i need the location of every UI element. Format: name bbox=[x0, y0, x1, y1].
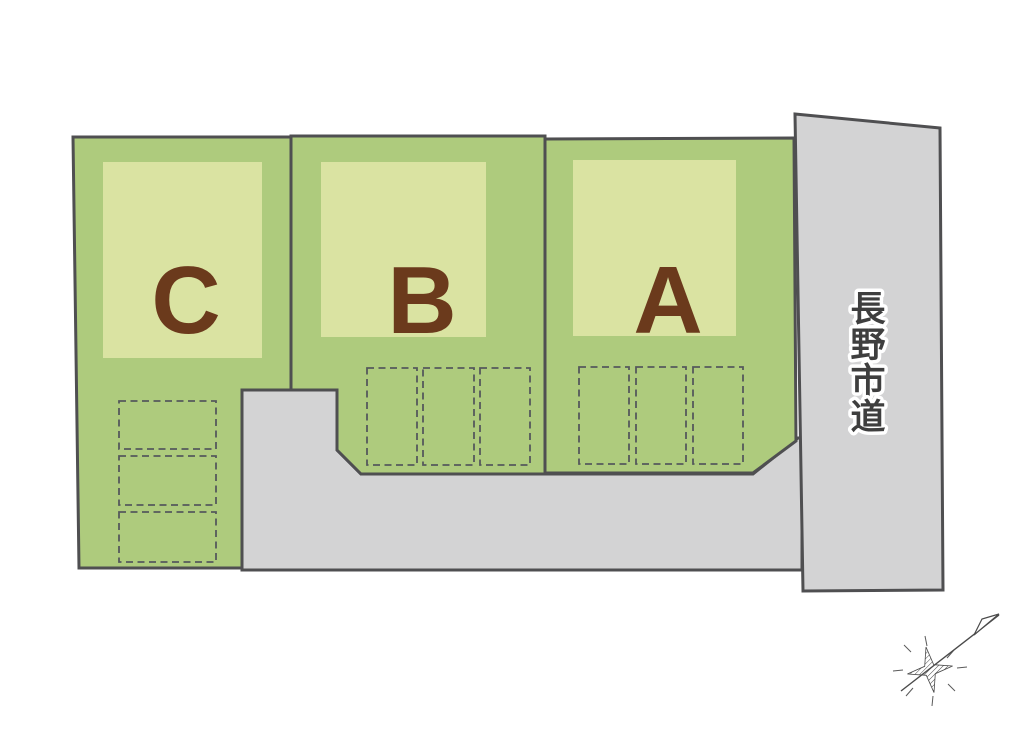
compass-arrow-head bbox=[974, 614, 999, 635]
road-label-char: 長 bbox=[850, 290, 886, 329]
north-arrow-icon bbox=[893, 614, 999, 706]
road-label-char: 野 bbox=[850, 326, 885, 365]
lot-a: A bbox=[545, 138, 796, 473]
road-label-char: 道 bbox=[850, 398, 885, 437]
lot-a-label: A bbox=[633, 247, 702, 354]
road-label-char: 市 bbox=[850, 362, 885, 401]
site-plan: C B A 長 野 市 bbox=[0, 0, 1024, 741]
city-road-label: 長 野 市 道 bbox=[850, 290, 886, 437]
lot-b-label: B bbox=[387, 247, 456, 354]
compass-star bbox=[907, 647, 952, 693]
site-plan-canvas: C B A 長 野 市 bbox=[0, 0, 1024, 741]
lot-c-label: C bbox=[151, 247, 220, 354]
